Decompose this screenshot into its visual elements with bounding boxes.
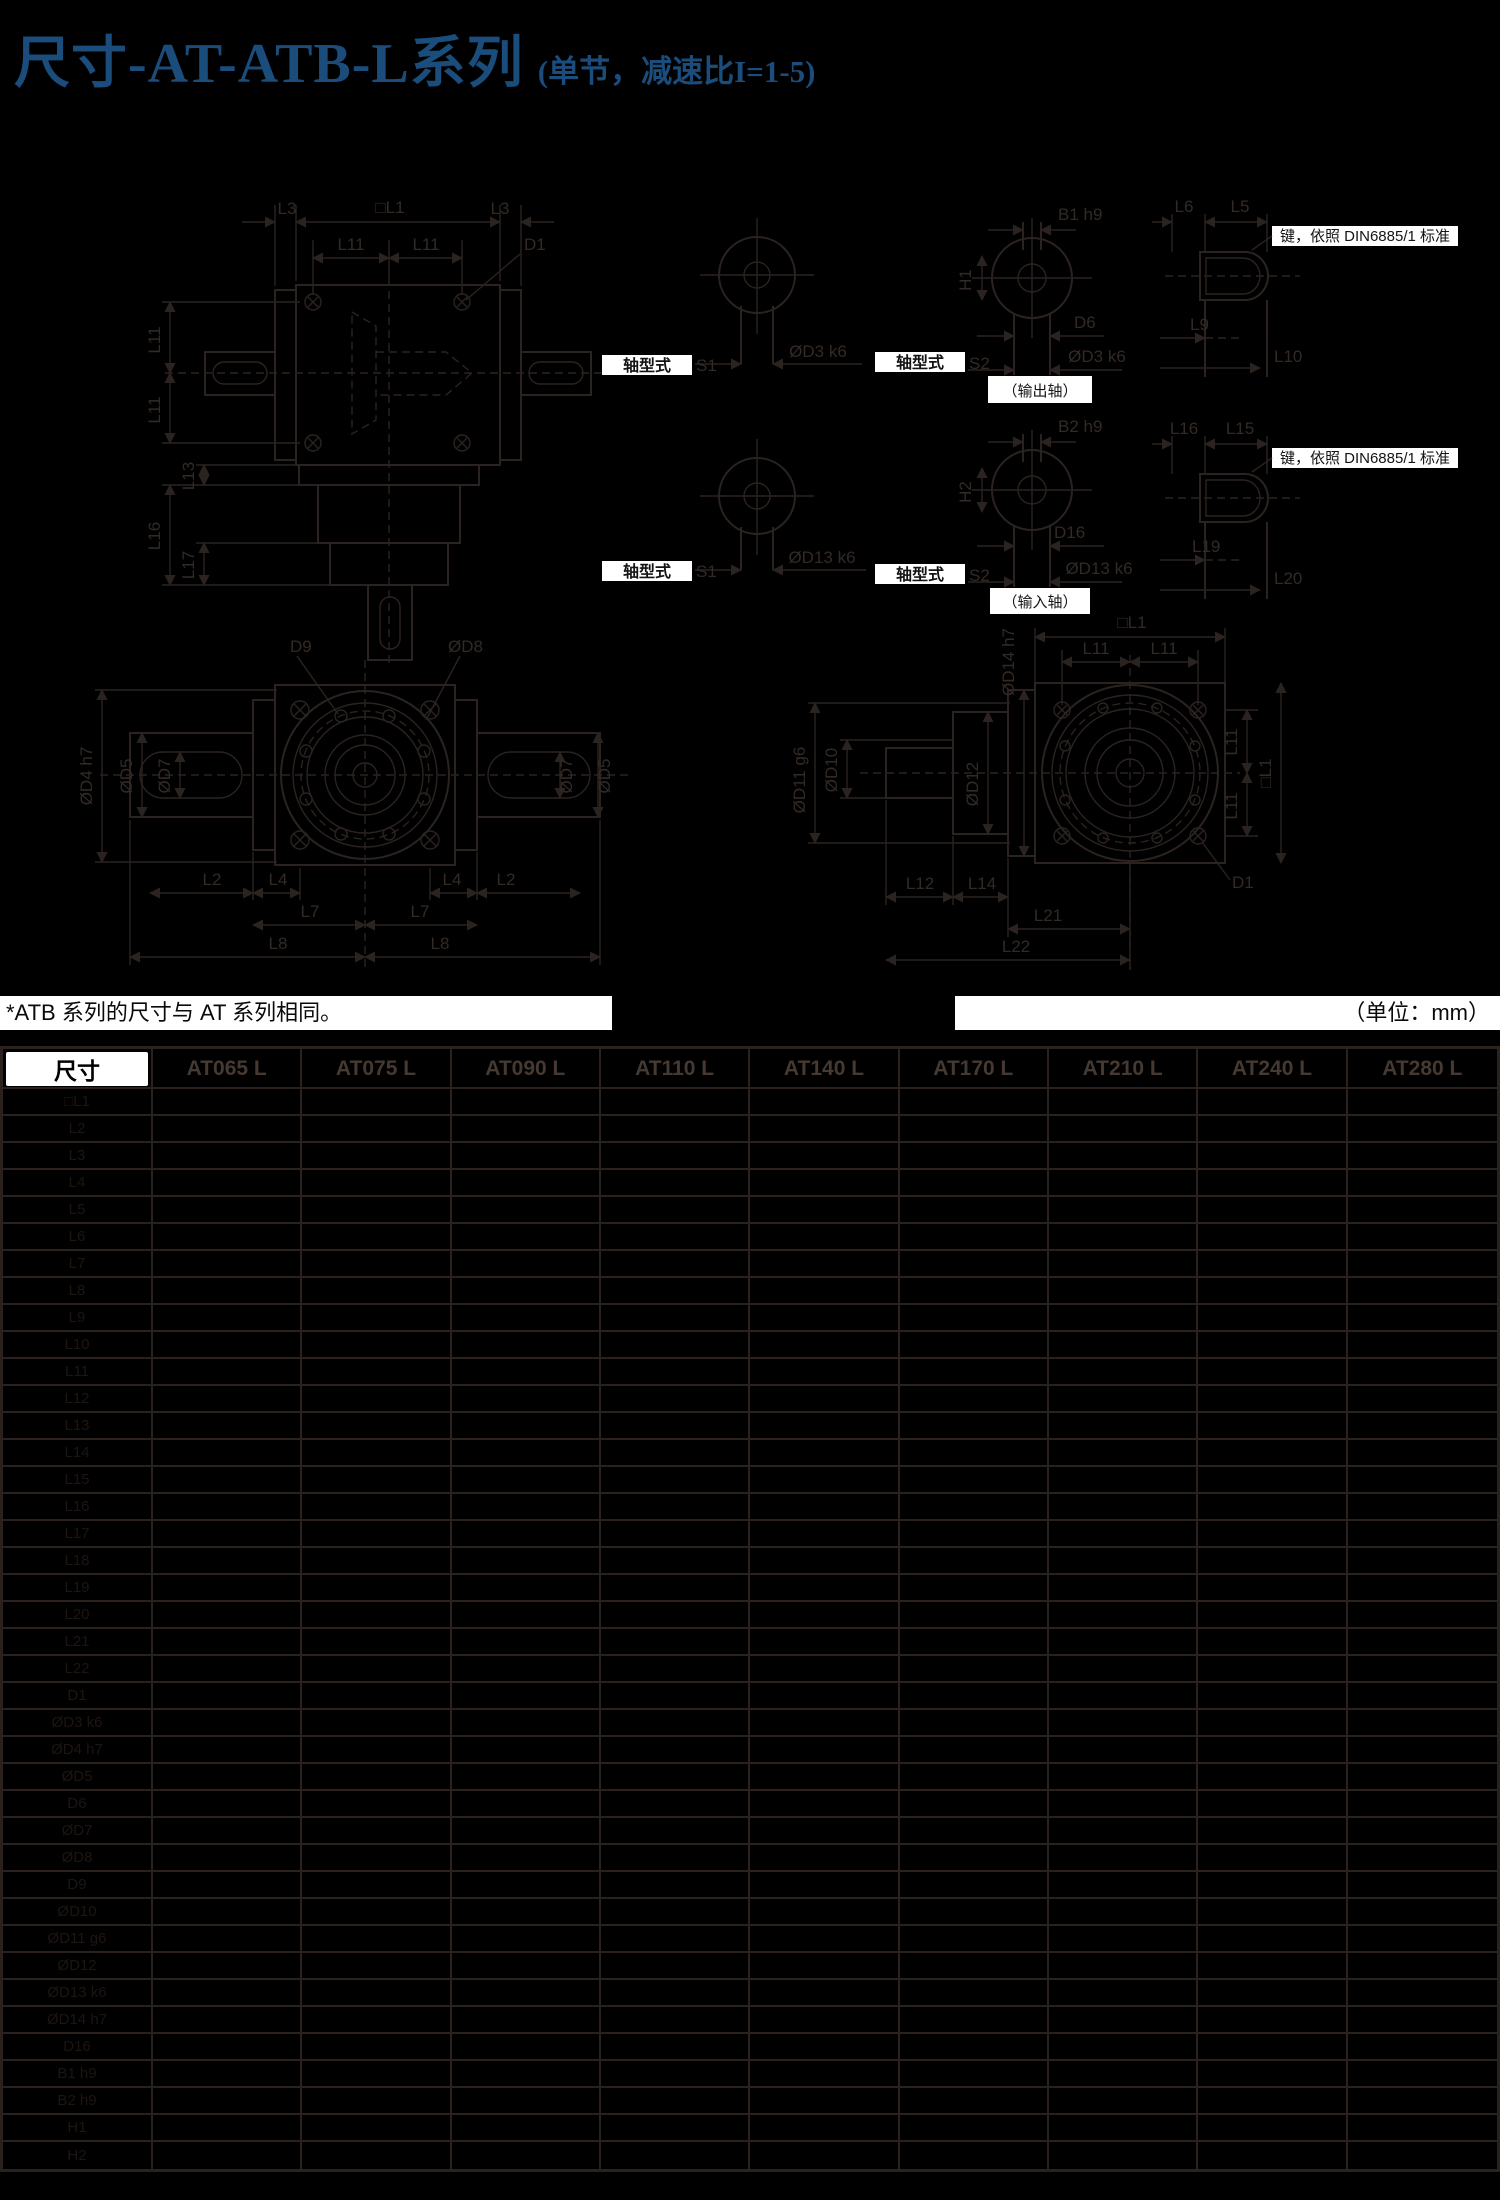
value-cell bbox=[452, 2088, 601, 2113]
dim-label: ØD3 k6 bbox=[789, 342, 847, 361]
value-cell bbox=[1198, 1332, 1347, 1357]
value-cell bbox=[302, 1521, 451, 1546]
row-label: D16 bbox=[3, 2034, 153, 2059]
dim-label: D6 bbox=[1074, 313, 1096, 332]
value-cell bbox=[750, 1872, 899, 1897]
dim-label: L8 bbox=[431, 934, 450, 953]
value-cell bbox=[1049, 1440, 1198, 1465]
dim-label: L17 bbox=[179, 551, 198, 579]
value-cell bbox=[1049, 1467, 1198, 1492]
value-cell bbox=[750, 1521, 899, 1546]
value-cell bbox=[153, 1116, 302, 1141]
value-cell bbox=[1049, 1386, 1198, 1411]
row-label: L22 bbox=[3, 1656, 153, 1681]
dim-label: L11 bbox=[1150, 639, 1177, 658]
row-label: L19 bbox=[3, 1575, 153, 1600]
dim-label: L14 bbox=[968, 874, 996, 893]
value-cell bbox=[302, 1386, 451, 1411]
value-cell bbox=[153, 1170, 302, 1195]
value-cell bbox=[153, 1872, 302, 1897]
row-label: ØD14 h7 bbox=[3, 2007, 153, 2032]
value-cell bbox=[1198, 1818, 1347, 1843]
table-row: ØD12 bbox=[3, 1953, 1497, 1980]
value-cell bbox=[1348, 1521, 1497, 1546]
value-cell bbox=[1049, 2088, 1198, 2113]
value-cell bbox=[452, 1818, 601, 1843]
value-cell bbox=[900, 1575, 1049, 1600]
value-cell bbox=[1049, 1737, 1198, 1762]
value-cell bbox=[153, 2034, 302, 2059]
value-cell bbox=[900, 1764, 1049, 1789]
value-cell bbox=[1198, 1683, 1347, 1708]
key-note-label: 键，依照 DIN6885/1 标准 bbox=[1280, 228, 1450, 245]
row-label: L4 bbox=[3, 1170, 153, 1195]
row-label: H2 bbox=[3, 2142, 153, 2169]
value-cell bbox=[153, 1575, 302, 1600]
value-cell bbox=[302, 1872, 451, 1897]
value-cell bbox=[1049, 2061, 1198, 2086]
value-cell bbox=[601, 1278, 750, 1303]
value-cell bbox=[1198, 1494, 1347, 1519]
row-label: ØD11 g6 bbox=[3, 1926, 153, 1951]
value-cell bbox=[750, 1548, 899, 1573]
value-cell bbox=[302, 1602, 451, 1627]
value-cell bbox=[452, 1494, 601, 1519]
value-cell bbox=[900, 2034, 1049, 2059]
value-cell bbox=[452, 1251, 601, 1276]
value-cell bbox=[601, 1845, 750, 1870]
value-cell bbox=[750, 1440, 899, 1465]
value-cell bbox=[1348, 1737, 1497, 1762]
value-cell bbox=[1049, 2142, 1198, 2169]
dim-label: H1 bbox=[956, 269, 975, 291]
value-cell bbox=[750, 1602, 899, 1627]
row-label: L13 bbox=[3, 1413, 153, 1438]
dim-label: ØD10 bbox=[822, 748, 841, 792]
table-row: L20 bbox=[3, 1602, 1497, 1629]
value-cell bbox=[452, 2007, 601, 2032]
value-cell bbox=[302, 1791, 451, 1816]
row-label: L10 bbox=[3, 1332, 153, 1357]
value-cell bbox=[1348, 1089, 1497, 1114]
value-cell bbox=[1198, 1467, 1347, 1492]
value-cell bbox=[1198, 1143, 1347, 1168]
value-cell bbox=[452, 1116, 601, 1141]
value-cell bbox=[1198, 1737, 1347, 1762]
value-cell bbox=[900, 1170, 1049, 1195]
value-cell bbox=[601, 1359, 750, 1384]
value-cell bbox=[900, 2115, 1049, 2140]
value-cell bbox=[900, 1251, 1049, 1276]
value-cell bbox=[1348, 1251, 1497, 1276]
value-cell bbox=[302, 1413, 451, 1438]
value-cell bbox=[1049, 1305, 1198, 1330]
row-label: L2 bbox=[3, 1116, 153, 1141]
shaft-code-label: S1 bbox=[696, 562, 717, 581]
value-cell bbox=[900, 1980, 1049, 2005]
value-cell bbox=[1049, 1224, 1198, 1249]
value-cell bbox=[900, 2061, 1049, 2086]
value-cell bbox=[302, 2115, 451, 2140]
table-row: ØD10 bbox=[3, 1899, 1497, 1926]
dim-label: L19 bbox=[1192, 537, 1220, 556]
value-cell bbox=[153, 1629, 302, 1654]
value-cell bbox=[900, 1737, 1049, 1762]
value-cell bbox=[601, 1143, 750, 1168]
dim-label: L11 bbox=[337, 235, 364, 254]
value-cell bbox=[153, 1602, 302, 1627]
row-label: L8 bbox=[3, 1278, 153, 1303]
value-cell bbox=[302, 1953, 451, 1978]
shaft-code-label: S1 bbox=[696, 356, 717, 375]
value-cell bbox=[750, 1764, 899, 1789]
row-label: ØD5 bbox=[3, 1764, 153, 1789]
value-cell bbox=[1348, 1899, 1497, 1924]
dim-label: □L1 bbox=[1117, 613, 1146, 632]
value-cell bbox=[900, 1818, 1049, 1843]
row-label: ØD12 bbox=[3, 1953, 153, 1978]
value-cell bbox=[1049, 1656, 1198, 1681]
value-cell bbox=[153, 1305, 302, 1330]
value-cell bbox=[452, 1602, 601, 1627]
value-cell bbox=[452, 1359, 601, 1384]
dim-label: L3 bbox=[491, 199, 510, 218]
value-cell bbox=[1348, 1440, 1497, 1465]
dim-label: L2 bbox=[497, 870, 516, 889]
value-cell bbox=[153, 1440, 302, 1465]
value-cell bbox=[1348, 1629, 1497, 1654]
value-cell bbox=[302, 1305, 451, 1330]
value-cell bbox=[452, 1575, 601, 1600]
table-row: D1 bbox=[3, 1683, 1497, 1710]
table-row: L12 bbox=[3, 1386, 1497, 1413]
dim-label: L4 bbox=[269, 870, 288, 889]
value-cell bbox=[1198, 1305, 1347, 1330]
value-cell bbox=[1049, 1251, 1198, 1276]
value-cell bbox=[452, 1899, 601, 1924]
value-cell bbox=[452, 1143, 601, 1168]
row-label: L5 bbox=[3, 1197, 153, 1222]
value-cell bbox=[452, 1197, 601, 1222]
output-shaft-label: （输出轴） bbox=[1002, 383, 1077, 400]
shaft-type-label: 轴型式 bbox=[896, 353, 944, 372]
column-header: AT170 L bbox=[900, 1049, 1049, 1089]
row-label: □L1 bbox=[3, 1089, 153, 1114]
value-cell bbox=[750, 1494, 899, 1519]
row-label: L15 bbox=[3, 1467, 153, 1492]
column-header: AT065 L bbox=[153, 1049, 302, 1089]
value-cell bbox=[1198, 1845, 1347, 1870]
value-cell bbox=[750, 1413, 899, 1438]
value-cell bbox=[153, 1224, 302, 1249]
value-cell bbox=[1198, 1602, 1347, 1627]
value-cell bbox=[1348, 1953, 1497, 1978]
dim-label: B1 h9 bbox=[1058, 205, 1102, 224]
dim-label: ØD3 k6 bbox=[1068, 347, 1126, 366]
dim-label: B2 h9 bbox=[1058, 417, 1102, 436]
value-cell bbox=[1198, 1089, 1347, 1114]
value-cell bbox=[601, 1656, 750, 1681]
value-cell bbox=[302, 1089, 451, 1114]
dim-label: L11 bbox=[1082, 639, 1109, 658]
row-label: ØD8 bbox=[3, 1845, 153, 1870]
value-cell bbox=[1348, 1332, 1497, 1357]
dim-label: H2 bbox=[956, 481, 975, 503]
dimension-table-body: □L1L2L3L4L5L6L7L8L9L10L11L12L13L14L15L16… bbox=[3, 1089, 1497, 2169]
value-cell bbox=[1348, 2115, 1497, 2140]
value-cell bbox=[750, 2034, 899, 2059]
value-cell bbox=[1198, 1899, 1347, 1924]
input-shaft-label: （输入轴） bbox=[1002, 594, 1077, 611]
value-cell bbox=[750, 1089, 899, 1114]
table-row: L10 bbox=[3, 1332, 1497, 1359]
value-cell bbox=[601, 1440, 750, 1465]
value-cell bbox=[601, 1467, 750, 1492]
value-cell bbox=[302, 2061, 451, 2086]
value-cell bbox=[302, 1332, 451, 1357]
value-cell bbox=[1348, 1143, 1497, 1168]
value-cell bbox=[601, 1548, 750, 1573]
row-label: L14 bbox=[3, 1440, 153, 1465]
table-row: B2 h9 bbox=[3, 2088, 1497, 2115]
value-cell bbox=[1348, 1494, 1497, 1519]
row-label: D1 bbox=[3, 1683, 153, 1708]
drawing-gearbox-front: L3 □L1 L3 L11 L11 D1 L11 L11 L16 L bbox=[145, 198, 605, 668]
value-cell bbox=[153, 1332, 302, 1357]
value-cell bbox=[900, 1413, 1049, 1438]
value-cell bbox=[900, 1953, 1049, 1978]
value-cell bbox=[1198, 1116, 1347, 1141]
value-cell bbox=[452, 1521, 601, 1546]
table-row: L11 bbox=[3, 1359, 1497, 1386]
value-cell bbox=[750, 2142, 899, 2169]
row-label: L21 bbox=[3, 1629, 153, 1654]
value-cell bbox=[601, 1413, 750, 1438]
column-header: AT140 L bbox=[750, 1049, 899, 1089]
table-row: □L1 bbox=[3, 1089, 1497, 1116]
corner-label: 尺寸 bbox=[6, 1052, 148, 1086]
value-cell bbox=[1348, 1710, 1497, 1735]
value-cell bbox=[452, 2034, 601, 2059]
value-cell bbox=[153, 1278, 302, 1303]
value-cell bbox=[1049, 1683, 1198, 1708]
value-cell bbox=[1049, 1926, 1198, 1951]
value-cell bbox=[1348, 1197, 1497, 1222]
value-cell bbox=[452, 1656, 601, 1681]
value-cell bbox=[1049, 1845, 1198, 1870]
value-cell bbox=[750, 1359, 899, 1384]
value-cell bbox=[900, 1359, 1049, 1384]
table-header-row: 尺寸 AT065 LAT075 LAT090 LAT110 LAT140 LAT… bbox=[3, 1049, 1497, 1089]
value-cell bbox=[1348, 1656, 1497, 1681]
value-cell bbox=[153, 1953, 302, 1978]
value-cell bbox=[1198, 2007, 1347, 2032]
value-cell bbox=[750, 1278, 899, 1303]
dim-label: ØD8 bbox=[448, 637, 483, 656]
value-cell bbox=[452, 1710, 601, 1735]
value-cell bbox=[302, 2142, 451, 2169]
value-cell bbox=[601, 1737, 750, 1762]
column-header: AT075 L bbox=[302, 1049, 451, 1089]
value-cell bbox=[452, 1413, 601, 1438]
value-cell bbox=[601, 2142, 750, 2169]
value-cell bbox=[452, 1764, 601, 1789]
value-cell bbox=[302, 1278, 451, 1303]
value-cell bbox=[153, 1413, 302, 1438]
value-cell bbox=[452, 1548, 601, 1573]
value-cell bbox=[302, 1656, 451, 1681]
value-cell bbox=[601, 1251, 750, 1276]
value-cell bbox=[302, 1359, 451, 1384]
dim-label: ØD11 g6 bbox=[790, 747, 809, 814]
value-cell bbox=[452, 1737, 601, 1762]
drawing-keys-din6885: L6 L5 键，依照 DIN6885/1 标准 L9 L10 L16 L15 键… bbox=[1152, 197, 1458, 599]
value-cell bbox=[452, 1953, 601, 1978]
value-cell bbox=[1049, 1170, 1198, 1195]
value-cell bbox=[1198, 1926, 1347, 1951]
value-cell bbox=[1348, 1872, 1497, 1897]
value-cell bbox=[302, 1845, 451, 1870]
dim-label: ØD7 bbox=[155, 759, 174, 794]
dim-label: L20 bbox=[1274, 569, 1302, 588]
table-row: ØD3 k6 bbox=[3, 1710, 1497, 1737]
table-row: L16 bbox=[3, 1494, 1497, 1521]
value-cell bbox=[302, 1224, 451, 1249]
value-cell bbox=[601, 1305, 750, 1330]
value-cell bbox=[1049, 2034, 1198, 2059]
value-cell bbox=[1049, 1089, 1198, 1114]
table-row: ØD5 bbox=[3, 1764, 1497, 1791]
value-cell bbox=[750, 1710, 899, 1735]
value-cell bbox=[601, 1872, 750, 1897]
value-cell bbox=[1198, 1953, 1347, 1978]
value-cell bbox=[1198, 2115, 1347, 2140]
value-cell bbox=[900, 1710, 1049, 1735]
value-cell bbox=[452, 1224, 601, 1249]
value-cell bbox=[750, 1332, 899, 1357]
row-label: ØD7 bbox=[3, 1818, 153, 1843]
dim-label: ØD12 bbox=[963, 762, 982, 806]
catalog-page: 尺寸-AT-ATB-L系列(单节，减速比I=1-5) bbox=[0, 0, 1500, 2200]
value-cell bbox=[452, 1683, 601, 1708]
dim-label: L16 bbox=[1170, 419, 1198, 438]
dim-label: L16 bbox=[145, 522, 164, 550]
value-cell bbox=[601, 1521, 750, 1546]
value-cell bbox=[1049, 1494, 1198, 1519]
value-cell bbox=[900, 1629, 1049, 1654]
value-cell bbox=[302, 1116, 451, 1141]
title-main: 尺寸-AT-ATB-L系列 bbox=[14, 33, 524, 95]
value-cell bbox=[1348, 1386, 1497, 1411]
value-cell bbox=[1348, 2034, 1497, 2059]
value-cell bbox=[900, 2007, 1049, 2032]
value-cell bbox=[900, 1656, 1049, 1681]
value-cell bbox=[750, 1197, 899, 1222]
value-cell bbox=[1198, 1440, 1347, 1465]
value-cell bbox=[601, 1683, 750, 1708]
value-cell bbox=[900, 1143, 1049, 1168]
column-header: AT090 L bbox=[452, 1049, 601, 1089]
value-cell bbox=[1049, 1413, 1198, 1438]
dim-label: L10 bbox=[1274, 347, 1302, 366]
table-corner-cell: 尺寸 bbox=[3, 1049, 153, 1089]
value-cell bbox=[1198, 1575, 1347, 1600]
value-cell bbox=[601, 1116, 750, 1141]
value-cell bbox=[1049, 1710, 1198, 1735]
value-cell bbox=[153, 1359, 302, 1384]
unit-note: （单位：mm） bbox=[955, 996, 1500, 1030]
value-cell bbox=[601, 2007, 750, 2032]
value-cell bbox=[302, 1629, 451, 1654]
shaft-type-label: 轴型式 bbox=[896, 565, 944, 584]
value-cell bbox=[1348, 1548, 1497, 1573]
dim-label: D1 bbox=[524, 235, 546, 254]
value-cell bbox=[153, 1197, 302, 1222]
value-cell bbox=[1198, 2061, 1347, 2086]
dim-label: ØD13 k6 bbox=[788, 548, 855, 567]
value-cell bbox=[1198, 1224, 1347, 1249]
value-cell bbox=[1049, 1359, 1198, 1384]
drawing-shaft-type-s2: B1 h9 H1 D6 ØD3 k6 轴型式 S2 （输出轴） B2 h9 H2 bbox=[875, 205, 1133, 614]
value-cell bbox=[900, 1467, 1049, 1492]
dim-label: L11 bbox=[412, 235, 439, 254]
value-cell bbox=[452, 1980, 601, 2005]
value-cell bbox=[900, 1548, 1049, 1573]
value-cell bbox=[601, 1899, 750, 1924]
value-cell bbox=[1049, 1818, 1198, 1843]
value-cell bbox=[452, 1467, 601, 1492]
value-cell bbox=[153, 1683, 302, 1708]
dim-label: L3 bbox=[278, 199, 297, 218]
value-cell bbox=[153, 1818, 302, 1843]
dim-label: L11 bbox=[1222, 792, 1241, 819]
value-cell bbox=[302, 1710, 451, 1735]
value-cell bbox=[750, 1980, 899, 2005]
value-cell bbox=[750, 1251, 899, 1276]
value-cell bbox=[1198, 1764, 1347, 1789]
value-cell bbox=[1198, 1413, 1347, 1438]
value-cell bbox=[750, 1953, 899, 1978]
row-label: L18 bbox=[3, 1548, 153, 1573]
value-cell bbox=[1198, 1656, 1347, 1681]
value-cell bbox=[601, 1575, 750, 1600]
row-label: B2 h9 bbox=[3, 2088, 153, 2113]
value-cell bbox=[302, 1764, 451, 1789]
value-cell bbox=[153, 1548, 302, 1573]
value-cell bbox=[1049, 1197, 1198, 1222]
value-cell bbox=[1198, 1710, 1347, 1735]
value-cell bbox=[1049, 1116, 1198, 1141]
value-cell bbox=[900, 1116, 1049, 1141]
value-cell bbox=[750, 1818, 899, 1843]
dim-label: □L1 bbox=[375, 198, 404, 217]
value-cell bbox=[153, 2142, 302, 2169]
dim-label: L2 bbox=[203, 870, 222, 889]
value-cell bbox=[452, 1872, 601, 1897]
table-row: H1 bbox=[3, 2115, 1497, 2142]
value-cell bbox=[601, 2088, 750, 2113]
value-cell bbox=[900, 1872, 1049, 1897]
value-cell bbox=[601, 1332, 750, 1357]
value-cell bbox=[153, 1656, 302, 1681]
value-cell bbox=[1198, 1251, 1347, 1276]
value-cell bbox=[900, 1440, 1049, 1465]
value-cell bbox=[1348, 1926, 1497, 1951]
value-cell bbox=[1348, 2061, 1497, 2086]
column-header: AT210 L bbox=[1049, 1049, 1198, 1089]
dim-label: D1 bbox=[1232, 873, 1254, 892]
value-cell bbox=[153, 1494, 302, 1519]
